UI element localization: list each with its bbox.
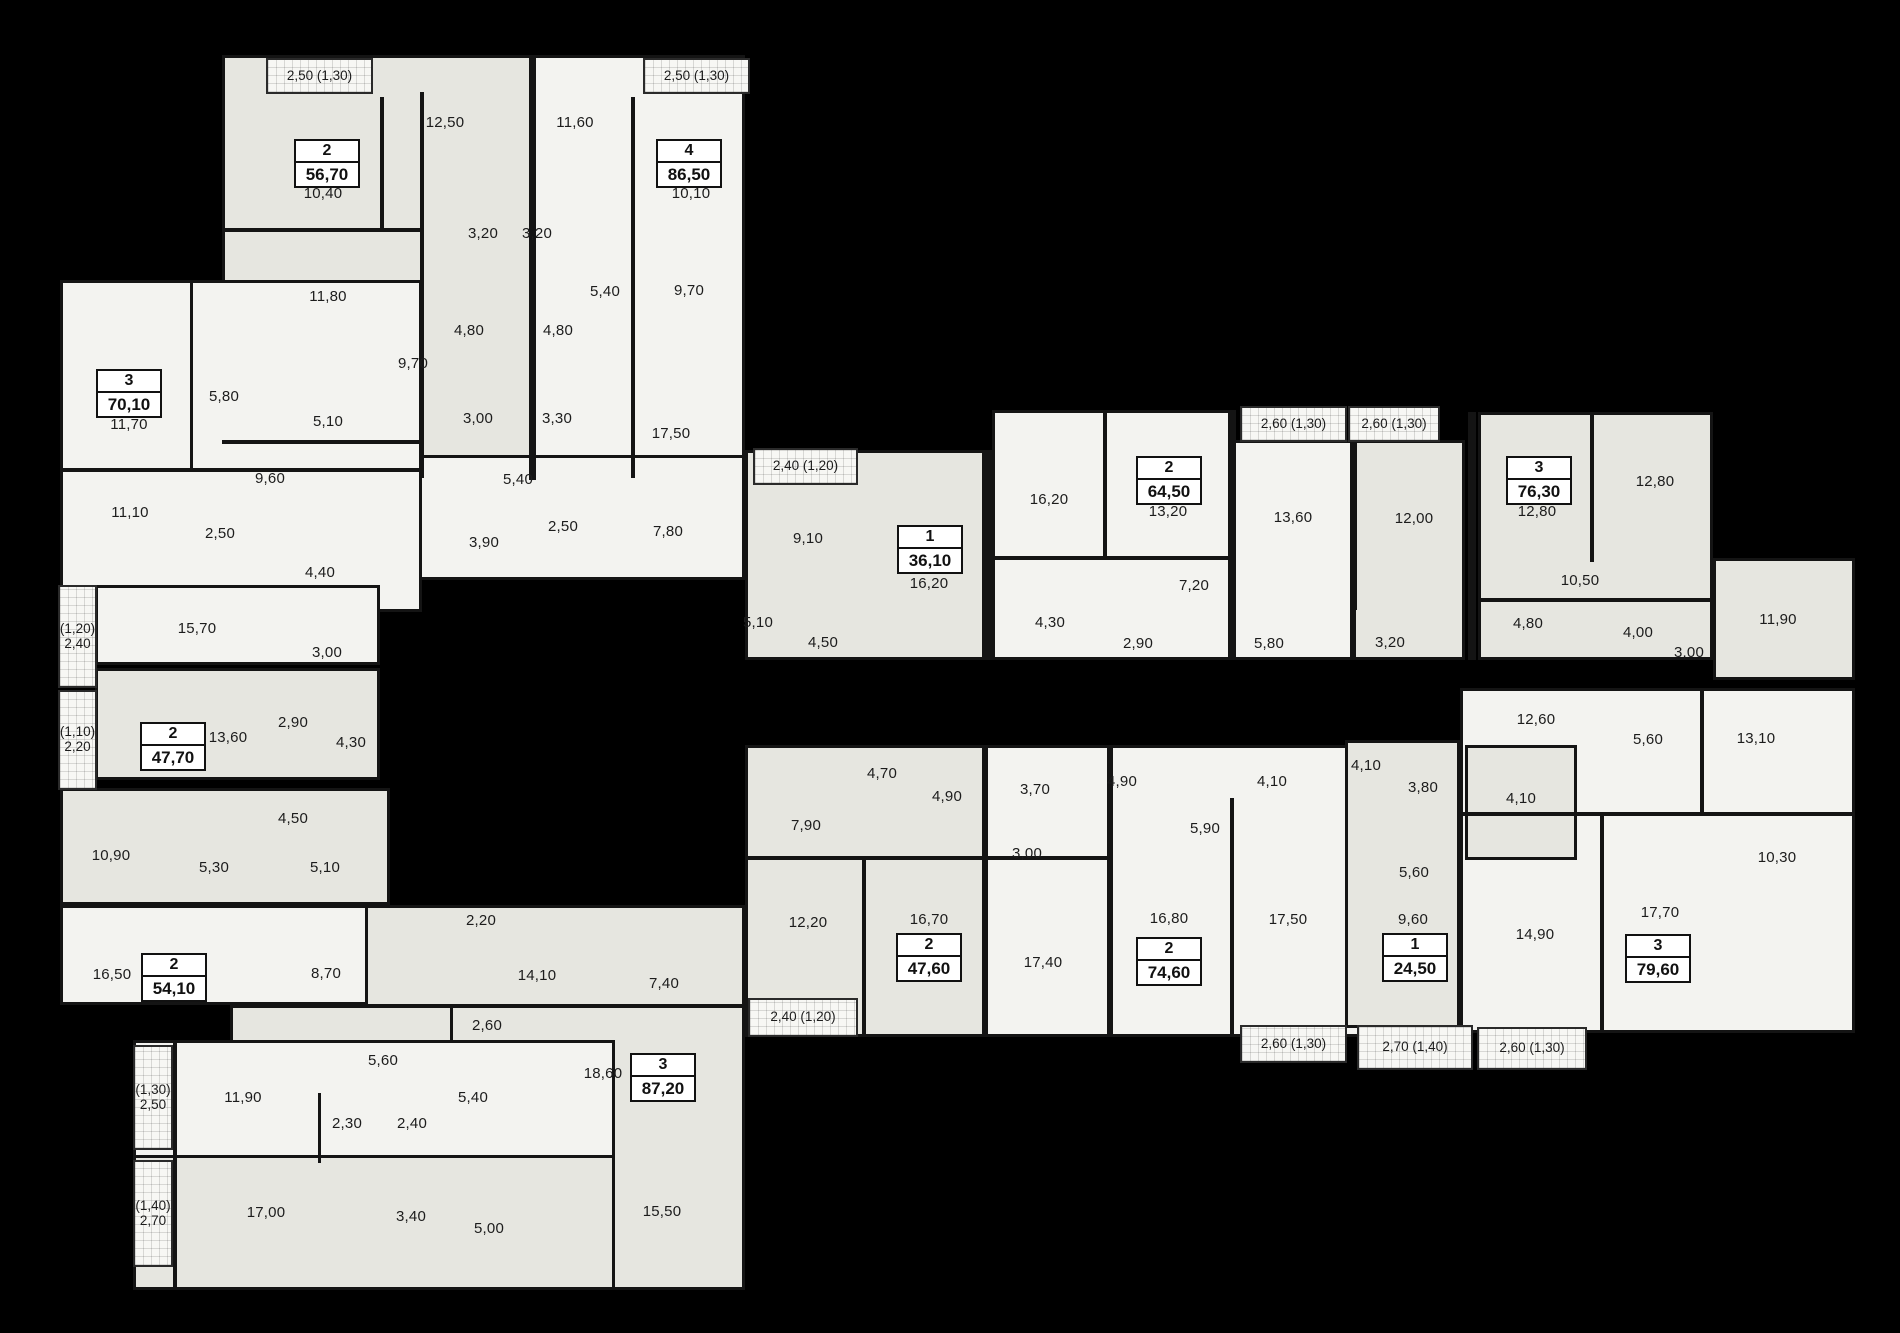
balcony: (1,10) 2,20 — [58, 690, 97, 790]
apartment-area: 79,60 — [1627, 958, 1689, 981]
room-area-label: 4,00 — [1590, 624, 1686, 641]
apartment-area: 64,50 — [1138, 480, 1200, 503]
wall-segment — [190, 282, 193, 468]
apartment-rooms-count: 1 — [899, 527, 961, 549]
balcony: 2,50 (1,30) — [266, 58, 373, 94]
room-area-label: 2,90 — [1090, 635, 1186, 652]
room-area-label: 11,80 — [280, 288, 376, 305]
balcony-label: 2,40 (1,20) — [773, 459, 838, 474]
apartment-rooms-count: 2 — [296, 141, 358, 163]
room-area-label: 3,00 — [979, 845, 1075, 862]
apartment-rooms-count: 3 — [1627, 936, 1689, 958]
apartment-area: 54,10 — [143, 977, 205, 1000]
room-area-label: 7,80 — [620, 523, 716, 540]
wall-segment — [1103, 412, 1107, 558]
balcony-label: 2,50 (1,30) — [287, 69, 352, 84]
room-area-label: 14,90 — [1487, 926, 1583, 943]
room-area-label: 3,80 — [1375, 779, 1471, 796]
apartment-rooms-count: 2 — [1138, 939, 1200, 961]
building-block — [1232, 440, 1353, 660]
room-area-label: 4,10 — [1473, 790, 1569, 807]
apartment-badge: 247,70 — [140, 722, 206, 771]
apartment-badge: 486,50 — [656, 139, 722, 188]
room-area-label: 5,10 — [277, 859, 373, 876]
apartment-area: 87,20 — [632, 1077, 694, 1100]
balcony-label: (1,30) 2,50 — [135, 1083, 170, 1113]
apartment-rooms-count: 2 — [143, 955, 205, 977]
room-area-label: 13,10 — [1708, 730, 1804, 747]
apartment-badge: 256,70 — [294, 139, 360, 188]
apartment-badge: 370,10 — [96, 369, 162, 418]
room-area-label: 17,50 — [623, 425, 719, 442]
room-area-label: 14,10 — [489, 967, 585, 984]
room-area-label: 2,40 — [364, 1115, 460, 1132]
balcony-label: 2,70 (1,40) — [1382, 1040, 1447, 1055]
room-area-label: 2,50 — [172, 525, 268, 542]
room-area-label: 4,90 — [899, 788, 995, 805]
room-area-label: 5,90 — [1157, 820, 1253, 837]
room-area-label: 17,70 — [1612, 904, 1708, 921]
room-area-label: 4,50 — [245, 810, 341, 827]
room-area-label: 9,60 — [1365, 911, 1461, 928]
apartment-badge: 379,60 — [1625, 934, 1691, 983]
apartment-rooms-count: 2 — [142, 724, 204, 746]
wall-segment — [420, 92, 424, 478]
balcony: 2,60 (1,30) — [1240, 406, 1347, 442]
apartment-rooms-count: 3 — [1508, 458, 1570, 480]
room-area-label: 15,50 — [614, 1203, 710, 1220]
balcony: 2,60 (1,30) — [1348, 406, 1440, 442]
room-area-label: 12,50 — [397, 114, 493, 131]
building-block — [60, 280, 422, 612]
room-area-label: 11,70 — [81, 416, 177, 433]
room-area-label: 3,00 — [1641, 644, 1737, 661]
room-area-label: 11,10 — [82, 504, 178, 521]
balcony-label: 2,60 (1,30) — [1499, 1041, 1564, 1056]
room-area-label: 5,40 — [470, 471, 566, 488]
apartment-badge: 124,50 — [1382, 933, 1448, 982]
room-area-label: 10,90 — [63, 847, 159, 864]
room-area-label: 11,90 — [1730, 611, 1826, 628]
apartment-rooms-count: 2 — [1138, 458, 1200, 480]
wall-segment — [1700, 688, 1704, 815]
room-area-label: 5,60 — [1600, 731, 1696, 748]
room-area-label: 3,30 — [509, 410, 605, 427]
balcony-label: 2,50 (1,30) — [664, 69, 729, 84]
room-area-label: 10,30 — [1729, 849, 1825, 866]
floor-plan-canvas: 2,50 (1,30)2,50 (1,30)2,40 (1,20)2,60 (1… — [0, 0, 1900, 1333]
room-area-label: 7,90 — [758, 817, 854, 834]
room-area-label: 9,10 — [760, 530, 856, 547]
wall-segment — [222, 440, 422, 444]
room-area-label: 5,60 — [1366, 864, 1462, 881]
room-area-label: 7,20 — [1146, 577, 1242, 594]
room-area-label: 11,60 — [527, 114, 623, 131]
room-area-label: 2,20 — [433, 912, 529, 929]
room-area-label: 2,60 — [439, 1017, 535, 1034]
room-area-label: 5,10 — [280, 413, 376, 430]
room-area-label: 15,70 — [149, 620, 245, 637]
room-area-label: 12,00 — [1366, 510, 1462, 527]
room-area-label: 3,20 — [489, 225, 585, 242]
balcony-label: 2,60 (1,30) — [1261, 1037, 1326, 1052]
room-area-label: 4,10 — [1318, 757, 1414, 774]
balcony-label: 2,60 (1,30) — [1361, 417, 1426, 432]
room-area-label: 5,80 — [176, 388, 272, 405]
wall-segment — [992, 556, 1230, 560]
balcony-label: 2,60 (1,30) — [1261, 417, 1326, 432]
apartment-area: 36,10 — [899, 549, 961, 572]
room-area-label: 4,40 — [272, 564, 368, 581]
wall-segment — [1590, 412, 1594, 562]
room-area-label: 3,00 — [279, 644, 375, 661]
room-area-label: 2,90 — [245, 714, 341, 731]
balcony: 2,60 (1,30) — [1240, 1025, 1347, 1063]
wall-segment — [1353, 440, 1357, 610]
room-area-label: 12,80 — [1607, 473, 1703, 490]
balcony: 2,50 (1,30) — [643, 58, 750, 94]
apartment-badge: 136,10 — [897, 525, 963, 574]
wall-segment — [222, 228, 422, 232]
apartment-area: 70,10 — [98, 393, 160, 416]
apartment-rooms-count: 3 — [632, 1055, 694, 1077]
room-area-label: 3,70 — [987, 781, 1083, 798]
building-block — [1353, 440, 1465, 660]
room-area-label: 5,10 — [710, 614, 806, 631]
room-area-label: 17,40 — [995, 954, 1091, 971]
wall-segment — [380, 97, 384, 230]
wall-segment — [1468, 412, 1476, 660]
room-area-label: 5,80 — [1221, 635, 1317, 652]
wall-segment — [1478, 598, 1713, 602]
apartment-badge: 376,30 — [1506, 456, 1572, 505]
balcony-label: (1,20) 2,40 — [60, 622, 95, 652]
room-area-label: 16,70 — [881, 911, 977, 928]
balcony: 2,70 (1,40) — [1357, 1025, 1473, 1070]
room-area-label: 8,70 — [278, 965, 374, 982]
wall-segment — [1460, 812, 1855, 816]
apartment-badge: 264,50 — [1136, 456, 1202, 505]
apartment-badge: 254,10 — [141, 953, 207, 1002]
room-area-label: 5,40 — [425, 1089, 521, 1106]
apartment-rooms-count: 2 — [898, 935, 960, 957]
room-area-label: 17,00 — [218, 1204, 314, 1221]
apartment-badge: 274,60 — [1136, 937, 1202, 986]
room-area-label: 9,70 — [641, 282, 737, 299]
room-area-label: 5,30 — [166, 859, 262, 876]
room-area-label: 5,00 — [441, 1220, 537, 1237]
room-area-label: 16,80 — [1121, 910, 1217, 927]
balcony: (1,30) 2,50 — [133, 1045, 173, 1150]
apartment-area: 24,50 — [1384, 957, 1446, 980]
apartment-badge: 247,60 — [896, 933, 962, 982]
apartment-area: 86,50 — [658, 163, 720, 186]
balcony: 2,60 (1,30) — [1477, 1027, 1587, 1070]
wall-segment — [862, 860, 866, 1037]
apartment-area: 47,70 — [142, 746, 204, 769]
room-area-label: 4,30 — [303, 734, 399, 751]
room-area-label: 4,50 — [775, 634, 871, 651]
apartment-area: 47,60 — [898, 957, 960, 980]
room-area-label: 12,80 — [1489, 503, 1585, 520]
room-area-label: 4,90 — [1074, 773, 1170, 790]
room-area-label: 5,60 — [335, 1052, 431, 1069]
apartment-rooms-count: 4 — [658, 141, 720, 163]
room-area-label: 4,80 — [421, 322, 517, 339]
room-area-label: 4,80 — [1480, 615, 1576, 632]
apartment-rooms-count: 1 — [1384, 935, 1446, 957]
room-area-label: 10,50 — [1532, 572, 1628, 589]
wall-segment — [983, 450, 992, 660]
balcony: (1,40) 2,70 — [133, 1160, 173, 1267]
room-area-label: 13,60 — [1245, 509, 1341, 526]
apartment-area: 76,30 — [1508, 480, 1570, 503]
room-area-label: 12,20 — [760, 914, 856, 931]
balcony-label: 2,40 (1,20) — [770, 1010, 835, 1025]
wall-segment — [1228, 410, 1236, 660]
room-area-label: 9,60 — [222, 470, 318, 487]
room-area-label: 4,30 — [1002, 614, 1098, 631]
room-area-label: 11,90 — [195, 1089, 291, 1106]
apartment-area: 56,70 — [296, 163, 358, 186]
room-area-label: 13,20 — [1120, 503, 1216, 520]
room-area-label: 5,40 — [557, 283, 653, 300]
room-area-label: 9,70 — [365, 355, 461, 372]
balcony: 2,40 (1,20) — [748, 998, 858, 1037]
apartment-badge: 387,20 — [630, 1053, 696, 1102]
room-area-label: 4,80 — [510, 322, 606, 339]
room-area-label: 12,60 — [1488, 711, 1584, 728]
wall-segment — [173, 1040, 177, 1290]
balcony-label: (1,40) 2,70 — [135, 1199, 170, 1229]
balcony: (1,20) 2,40 — [58, 585, 97, 688]
balcony-label: (1,10) 2,20 — [60, 725, 95, 755]
balcony: 2,40 (1,20) — [753, 448, 858, 485]
room-area-label: 2,50 — [515, 518, 611, 535]
room-area-label: 16,20 — [881, 575, 977, 592]
room-area-label: 3,20 — [1342, 634, 1438, 651]
room-area-label: 4,10 — [1224, 773, 1320, 790]
room-area-label: 4,70 — [834, 765, 930, 782]
room-area-label: 16,20 — [1001, 491, 1097, 508]
room-area-label: 7,40 — [616, 975, 712, 992]
apartment-area: 74,60 — [1138, 961, 1200, 984]
apartment-rooms-count: 3 — [98, 371, 160, 393]
wall-segment — [1600, 815, 1604, 1033]
room-area-label: 3,90 — [436, 534, 532, 551]
room-area-label: 17,50 — [1240, 911, 1336, 928]
